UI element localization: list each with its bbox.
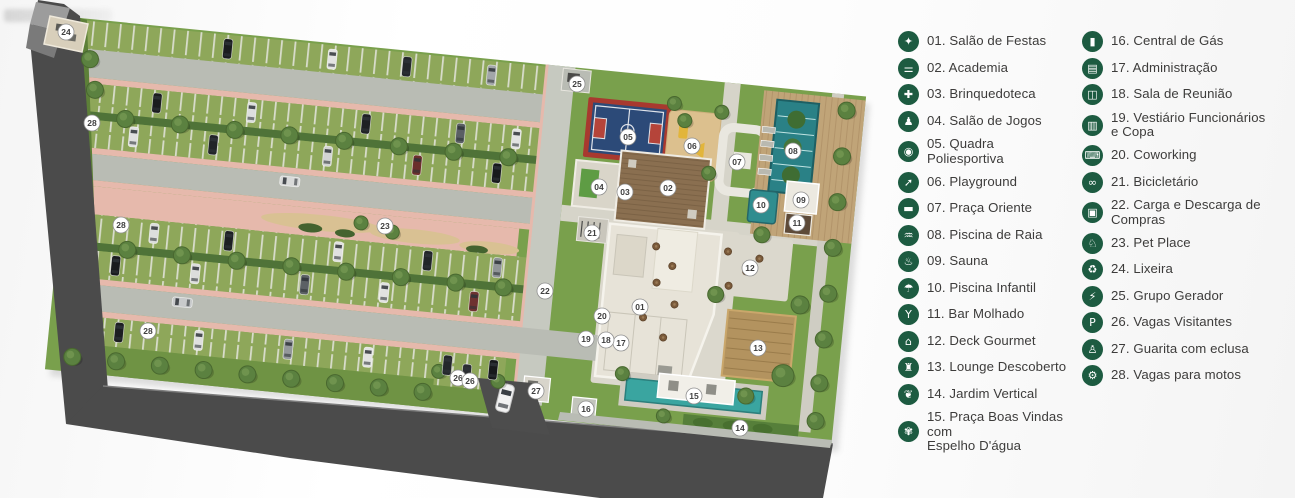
swimmer-icon: ♒ <box>898 225 919 246</box>
game-controller-icon: ♟ <box>898 111 919 132</box>
map-marker-28: 28 <box>140 323 156 339</box>
svg-text:12: 12 <box>745 263 755 273</box>
shopping-cart-icon: ▣ <box>1082 202 1103 223</box>
legend-item: ▣22. Carga e Descarga de Compras <box>1082 198 1295 227</box>
legend-item-label: 28. Vagas para motos <box>1111 368 1241 383</box>
map-marker-13: 13 <box>750 340 766 356</box>
legend-item-label: 23. Pet Place <box>1111 236 1191 251</box>
svg-text:23: 23 <box>380 221 390 231</box>
car <box>149 223 160 244</box>
legend-item-label: 11. Bar Molhado <box>927 307 1024 322</box>
car <box>327 49 338 70</box>
map-marker-26: 26 <box>462 373 478 389</box>
pergola-icon: ♜ <box>898 357 919 378</box>
svg-text:13: 13 <box>753 343 763 353</box>
gas-cylinder-icon: ▮ <box>1082 31 1103 52</box>
legend-item-label: 02. Academia <box>927 61 1008 76</box>
meeting-table-icon: ◫ <box>1082 84 1103 105</box>
car <box>279 176 300 187</box>
table <box>725 282 733 290</box>
car <box>488 359 499 380</box>
legend-item-label: 08. Piscina de Raia <box>927 228 1043 243</box>
steam-icon: ♨ <box>898 251 919 272</box>
legend-item-label: 25. Grupo Gerador <box>1111 289 1223 304</box>
legend: ✦01. Salão de Festas⚌02. Academia✚03. Br… <box>898 31 1295 459</box>
map-marker-11: 11 <box>789 215 805 231</box>
map-marker-12: 12 <box>742 260 758 276</box>
legend-item-label: 21. Bicicletário <box>1111 175 1198 190</box>
legend-item-label: 09. Sauna <box>927 254 988 269</box>
car <box>128 126 139 147</box>
legend-item: ♒08. Piscina de Raia <box>898 225 1074 246</box>
cocktail-glass-icon: Y <box>898 304 919 325</box>
svg-text:24: 24 <box>61 27 71 37</box>
map-marker-25: 25 <box>569 76 585 92</box>
car <box>333 241 344 262</box>
car <box>283 339 294 360</box>
car <box>190 263 201 284</box>
house-icon: ⌂ <box>898 331 919 352</box>
legend-item: ✦01. Salão de Festas <box>898 31 1074 52</box>
plant-icon: ❦ <box>898 384 919 405</box>
legend-item: ✚03. Brinquedoteca <box>898 84 1074 105</box>
svg-text:08: 08 <box>788 146 798 156</box>
site-plan-illustration: 0102030405060708091011121314151617181920… <box>0 0 880 498</box>
slide-icon: ➚ <box>898 172 919 193</box>
legend-item: ▤17. Administração <box>1082 58 1295 79</box>
legend-item-label: 07. Praça Oriente <box>927 201 1032 216</box>
svg-text:06: 06 <box>687 141 697 151</box>
legend-item-label: 10. Piscina Infantil <box>927 281 1036 296</box>
car <box>442 355 453 376</box>
car <box>422 250 433 271</box>
map-marker-09: 09 <box>793 192 809 208</box>
map-marker-16: 16 <box>578 401 594 417</box>
car <box>412 155 423 176</box>
map-marker-19: 19 <box>578 331 594 347</box>
generator-icon: ⚡ <box>1082 286 1103 307</box>
svg-text:02: 02 <box>663 183 673 193</box>
legend-item-label: 22. Carga e Descarga de Compras <box>1111 198 1295 227</box>
svg-text:21: 21 <box>587 228 597 238</box>
laptop-icon: ⌨ <box>1082 145 1103 166</box>
map-marker-10: 10 <box>753 197 769 213</box>
sports-court-icon: ◉ <box>898 141 919 162</box>
table <box>652 242 660 250</box>
legend-item-label: 15. Praça Boas Vindas com Espelho D'água <box>927 410 1074 454</box>
legend-item: ⌂12. Deck Gourmet <box>898 331 1074 352</box>
legend-column-2: ▮16. Central de Gás▤17. Administração◫18… <box>1082 31 1295 459</box>
legend-item-label: 17. Administração <box>1111 61 1218 76</box>
car <box>486 65 497 86</box>
legend-item: ☂10. Piscina Infantil <box>898 278 1074 299</box>
legend-item-label: 14. Jardim Vertical <box>927 387 1037 402</box>
svg-text:16: 16 <box>581 404 591 414</box>
map-marker-22: 22 <box>537 283 553 299</box>
dumbbell-icon: ⚌ <box>898 58 919 79</box>
svg-text:15: 15 <box>689 391 699 401</box>
car <box>401 56 412 77</box>
car <box>110 255 121 276</box>
fountain-icon: ✾ <box>898 421 919 442</box>
svg-text:04: 04 <box>594 182 604 192</box>
car <box>491 163 502 184</box>
legend-item-label: 12. Deck Gourmet <box>927 334 1036 349</box>
legend-item-label: 20. Coworking <box>1111 148 1197 163</box>
svg-text:05: 05 <box>623 132 633 142</box>
legend-item: ◫18. Sala de Reunião <box>1082 84 1295 105</box>
car <box>113 322 124 343</box>
svg-text:10: 10 <box>756 200 766 210</box>
balloons-icon: ✦ <box>898 31 919 52</box>
car <box>492 257 503 278</box>
legend-item: ▥19. Vestiário Funcionários e Copa <box>1082 111 1295 140</box>
svg-text:11: 11 <box>793 218 802 228</box>
map-marker-08: 08 <box>785 143 801 159</box>
legend-item: ⚙28. Vagas para motos <box>1082 365 1295 386</box>
legend-item: P26. Vagas Visitantes <box>1082 312 1295 333</box>
briefcase-icon: ▤ <box>1082 58 1103 79</box>
lockers-icon: ▥ <box>1082 115 1103 136</box>
svg-text:20: 20 <box>597 311 607 321</box>
table <box>724 248 732 256</box>
table <box>671 301 679 309</box>
map-marker-06: 06 <box>684 138 700 154</box>
svg-text:26: 26 <box>453 373 463 383</box>
car <box>362 347 373 368</box>
svg-text:18: 18 <box>601 335 611 345</box>
map-marker-01: 01 <box>632 299 648 315</box>
svg-text:26: 26 <box>465 376 475 386</box>
map-marker-17: 17 <box>613 335 629 351</box>
map-marker-15: 15 <box>686 388 702 404</box>
car <box>151 93 162 114</box>
car <box>223 230 234 251</box>
bicycle-icon: ∞ <box>1082 172 1103 193</box>
legend-item: ⚡25. Grupo Gerador <box>1082 286 1295 307</box>
car <box>360 114 371 135</box>
legend-item-label: 01. Salão de Festas <box>927 34 1046 49</box>
svg-text:27: 27 <box>531 386 541 396</box>
map-marker-04: 04 <box>591 179 607 195</box>
car <box>379 282 390 303</box>
svg-text:17: 17 <box>616 338 626 348</box>
legend-item: ✾15. Praça Boas Vindas com Espelho D'águ… <box>898 410 1074 454</box>
map-marker-03: 03 <box>617 184 633 200</box>
legend-column-1: ✦01. Salão de Festas⚌02. Academia✚03. Br… <box>898 31 1074 459</box>
legend-item: Y11. Bar Molhado <box>898 304 1074 325</box>
legend-item-label: 13. Lounge Descoberto <box>927 360 1066 375</box>
car <box>246 102 257 123</box>
page: 0102030405060708091011121314151617181920… <box>0 0 1295 498</box>
legend-item-label: 19. Vestiário Funcionários e Copa <box>1111 111 1265 140</box>
svg-text:03: 03 <box>620 187 630 197</box>
car <box>299 274 310 295</box>
legend-item: ♨09. Sauna <box>898 251 1074 272</box>
bench-icon: ▬ <box>898 198 919 219</box>
table <box>756 255 764 263</box>
map-marker-23: 23 <box>377 218 393 234</box>
legend-item-label: 16. Central de Gás <box>1111 34 1224 49</box>
table <box>653 279 661 287</box>
legend-item: ▮16. Central de Gás <box>1082 31 1295 52</box>
legend-item: ▬07. Praça Oriente <box>898 198 1074 219</box>
table <box>668 262 676 270</box>
map-marker-18: 18 <box>598 332 614 348</box>
map-marker-02: 02 <box>660 180 676 196</box>
map-marker-20: 20 <box>594 308 610 324</box>
trash-bin-icon: ♻ <box>1082 259 1103 280</box>
legend-item: ∞21. Bicicletário <box>1082 172 1295 193</box>
car <box>455 123 466 144</box>
legend-item: ➚06. Playground <box>898 172 1074 193</box>
svg-text:28: 28 <box>116 220 126 230</box>
legend-item-label: 27. Guarita com eclusa <box>1111 342 1249 357</box>
car <box>193 330 204 351</box>
car <box>468 291 479 312</box>
map-marker-07: 07 <box>729 154 745 170</box>
legend-item-label: 18. Sala de Reunião <box>1111 87 1232 102</box>
map-marker-21: 21 <box>584 225 600 241</box>
dog-icon: ♘ <box>1082 233 1103 254</box>
legend-item: ♘23. Pet Place <box>1082 233 1295 254</box>
legend-item-label: 05. Quadra Poliesportiva <box>927 137 1074 166</box>
legend-item-label: 03. Brinquedoteca <box>927 87 1036 102</box>
svg-text:28: 28 <box>143 326 153 336</box>
guard-icon: ♙ <box>1082 339 1103 360</box>
svg-text:22: 22 <box>540 286 550 296</box>
legend-item-label: 24. Lixeira <box>1111 262 1173 277</box>
legend-item-label: 04. Salão de Jogos <box>927 114 1042 129</box>
legend-item: ♟04. Salão de Jogos <box>898 111 1074 132</box>
svg-text:09: 09 <box>796 195 806 205</box>
legend-item: ❦14. Jardim Vertical <box>898 384 1074 405</box>
table <box>659 334 667 342</box>
svg-text:01: 01 <box>635 302 645 312</box>
map-marker-28: 28 <box>113 217 129 233</box>
legend-item: ♙27. Guarita com eclusa <box>1082 339 1295 360</box>
map-marker-14: 14 <box>732 420 748 436</box>
map-marker-28: 28 <box>84 115 100 131</box>
car <box>222 38 233 59</box>
legend-item: ⌨20. Coworking <box>1082 145 1295 166</box>
svg-text:19: 19 <box>581 334 591 344</box>
map-marker-05: 05 <box>620 129 636 145</box>
legend-item: ♜13. Lounge Descoberto <box>898 357 1074 378</box>
legend-item: ⚌02. Academia <box>898 58 1074 79</box>
legend-item: ♻24. Lixeira <box>1082 259 1295 280</box>
legend-item-label: 06. Playground <box>927 175 1017 190</box>
svg-text:28: 28 <box>87 118 97 128</box>
svg-text:14: 14 <box>735 423 745 433</box>
legend-item: ◉05. Quadra Poliesportiva <box>898 137 1074 166</box>
car-icon: P <box>1082 312 1103 333</box>
svg-text:07: 07 <box>732 157 742 167</box>
svg-text:25: 25 <box>572 79 582 89</box>
map-marker-24: 24 <box>58 24 74 40</box>
car <box>172 297 193 308</box>
car <box>322 146 333 167</box>
legend-item-label: 26. Vagas Visitantes <box>1111 315 1232 330</box>
puzzle-piece-icon: ✚ <box>898 84 919 105</box>
map-marker-27: 27 <box>528 383 544 399</box>
motorcycle-icon: ⚙ <box>1082 365 1103 386</box>
car <box>208 134 219 155</box>
car <box>511 129 522 150</box>
kids-pool-icon: ☂ <box>898 278 919 299</box>
